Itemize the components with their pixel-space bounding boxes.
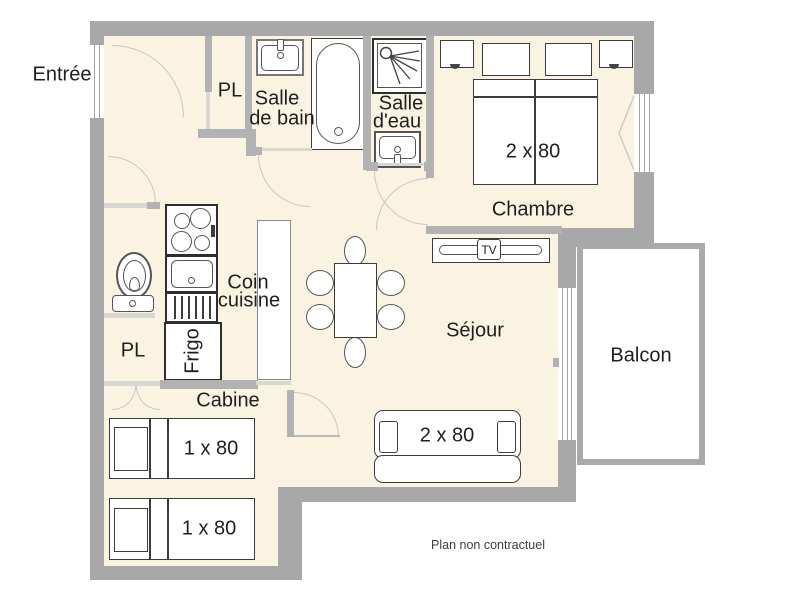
wall-wc-cap [147,202,160,209]
bathtub-icon [311,38,367,150]
wall-showerroom-bottom-left [366,162,378,171]
closet-double-door-opening [104,381,162,386]
bed-fold-line [167,498,169,560]
cabine-door-leaf [294,435,340,437]
toilet-flush-button [129,300,136,307]
bathtub-drain [334,127,343,136]
wall-hall-cabine [160,380,258,389]
bed-fold-line [149,418,151,479]
tv-label: TV [481,243,496,257]
single-bed-size-label: 1 x 80 [184,438,238,461]
kitchen-sink-icon [165,255,218,293]
label-cabine: Cabine [196,390,259,413]
wall-closet-top [205,36,212,92]
pillow [114,508,148,552]
fridge-label: Frigo [182,328,205,374]
chair-icon [306,304,334,330]
label-entree: Entrée [33,64,92,87]
sofa-armrest-left [379,421,398,453]
burner-icon [194,235,210,251]
stove-icon [165,204,218,256]
dining-table-icon [334,263,377,338]
chair-icon [377,270,405,296]
pillow-right [545,43,592,76]
toilet-seat-detail [129,277,140,291]
sofa-size-label: 2 x 80 [420,425,474,448]
label-chambre: Chambre [492,199,574,222]
wall-bathroom-bottom [246,147,262,155]
tv-icon: TV [477,239,501,260]
floor-plan: Frigo 2 x 80 [0,0,800,603]
wall-bedroom-bottom [426,226,562,234]
chair-icon [306,270,334,296]
double-bed-size-label: 2 x 80 [506,141,560,164]
sofa-seat [374,455,521,483]
wall-under-counter [256,381,291,385]
showerroom-door-leaf [378,163,426,166]
pillow-left [482,43,530,76]
window-casement-icon [618,94,635,172]
sink-drain [188,277,195,284]
shower-head-icon [378,44,422,88]
bedroom-window [634,94,654,172]
label-salle-deau-2: d'eau [373,111,421,134]
label-sejour: Séjour [446,320,504,343]
bed-fold-line [167,418,169,479]
chair-icon [344,337,366,368]
bathroom-door-leaf [262,148,312,151]
wall-closet-bottom [198,129,250,138]
bed-split-line [534,79,536,185]
label-pl-top: PL [218,80,242,103]
shower-icon [372,38,428,94]
entry-door-opening [90,45,104,118]
faucet-knob [277,52,284,59]
chair-icon [377,304,405,330]
wall-bottom-living [278,487,576,502]
drainer-icon [165,292,218,323]
wall-top [90,21,654,36]
bed-fold-line [473,96,598,98]
double-bed-icon [473,79,598,185]
wall-wc-closet-divider [104,313,155,318]
burner-icon [171,231,192,252]
fridge-icon: Frigo [164,322,222,381]
closet-door-leaf [206,92,210,130]
wall-bath-shower-divider [363,36,371,170]
burner-icon [174,213,190,229]
pillow [114,427,148,471]
label-pl-bottom: PL [121,340,145,363]
living-window [558,288,576,440]
burner-icon [190,208,211,229]
single-bed-size-label: 1 x 80 [182,518,236,541]
window-handle [553,358,559,367]
label-salle-de-bain-2: de bain [249,108,315,131]
wall-cabine-door-jamb [287,390,294,437]
wc-door-opening [104,203,152,208]
stove-control [211,225,215,237]
faucet-knob [394,146,401,153]
label-balcon: Balcon [610,345,671,368]
chair-icon [344,236,366,266]
wall-bedroom-left [426,36,434,178]
sofa-armrest-right [497,421,516,453]
wall-bottom [90,566,302,580]
bed-fold-line [149,498,151,560]
faucet-icon [277,39,284,51]
label-coin-cuisine-2: cuisine [218,290,280,313]
plan-disclaimer: Plan non contractuel [431,538,545,552]
